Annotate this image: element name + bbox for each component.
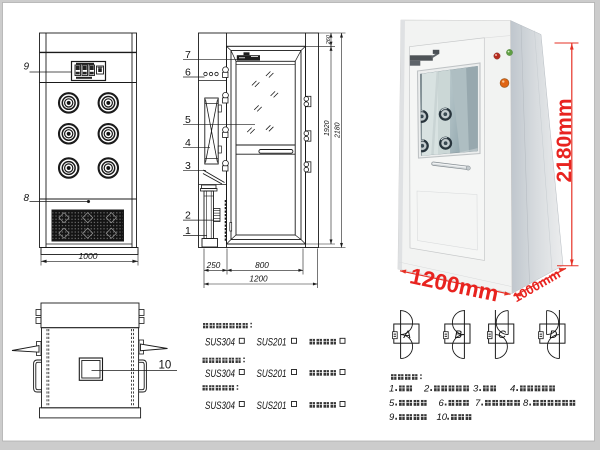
svg-text:SUS201: SUS201 bbox=[257, 337, 287, 349]
svg-text:C: C bbox=[498, 329, 506, 341]
svg-text:1920: 1920 bbox=[324, 120, 331, 136]
svg-text:1200: 1200 bbox=[249, 274, 268, 283]
svg-text:10: 10 bbox=[437, 412, 448, 423]
svg-text:SUS304: SUS304 bbox=[205, 400, 235, 412]
svg-text:5: 5 bbox=[389, 398, 395, 409]
svg-text:1000: 1000 bbox=[79, 251, 98, 261]
svg-text:3: 3 bbox=[473, 383, 479, 394]
svg-text:2180: 2180 bbox=[335, 122, 342, 139]
svg-text:8: 8 bbox=[24, 193, 30, 204]
svg-text:SUS304: SUS304 bbox=[205, 337, 235, 349]
svg-text:4: 4 bbox=[510, 383, 515, 394]
svg-text:D: D bbox=[549, 329, 557, 341]
svg-text:9: 9 bbox=[389, 412, 395, 423]
svg-text:1: 1 bbox=[389, 383, 394, 394]
svg-text:A: A bbox=[403, 329, 411, 341]
svg-text:7: 7 bbox=[475, 398, 481, 409]
svg-text:800: 800 bbox=[255, 261, 269, 270]
svg-text:SUS201: SUS201 bbox=[257, 368, 287, 380]
svg-text:260: 260 bbox=[326, 34, 332, 45]
svg-text:9: 9 bbox=[24, 62, 30, 73]
svg-text:SUS201: SUS201 bbox=[257, 400, 287, 412]
svg-text:250: 250 bbox=[206, 261, 221, 270]
svg-text:10: 10 bbox=[159, 360, 172, 372]
svg-text:SUS304: SUS304 bbox=[205, 368, 235, 380]
svg-text:2: 2 bbox=[423, 383, 430, 394]
svg-text:2180mm: 2180mm bbox=[553, 98, 576, 182]
svg-text:8: 8 bbox=[523, 398, 529, 409]
svg-text:B: B bbox=[455, 329, 462, 341]
svg-text:6: 6 bbox=[439, 398, 445, 409]
